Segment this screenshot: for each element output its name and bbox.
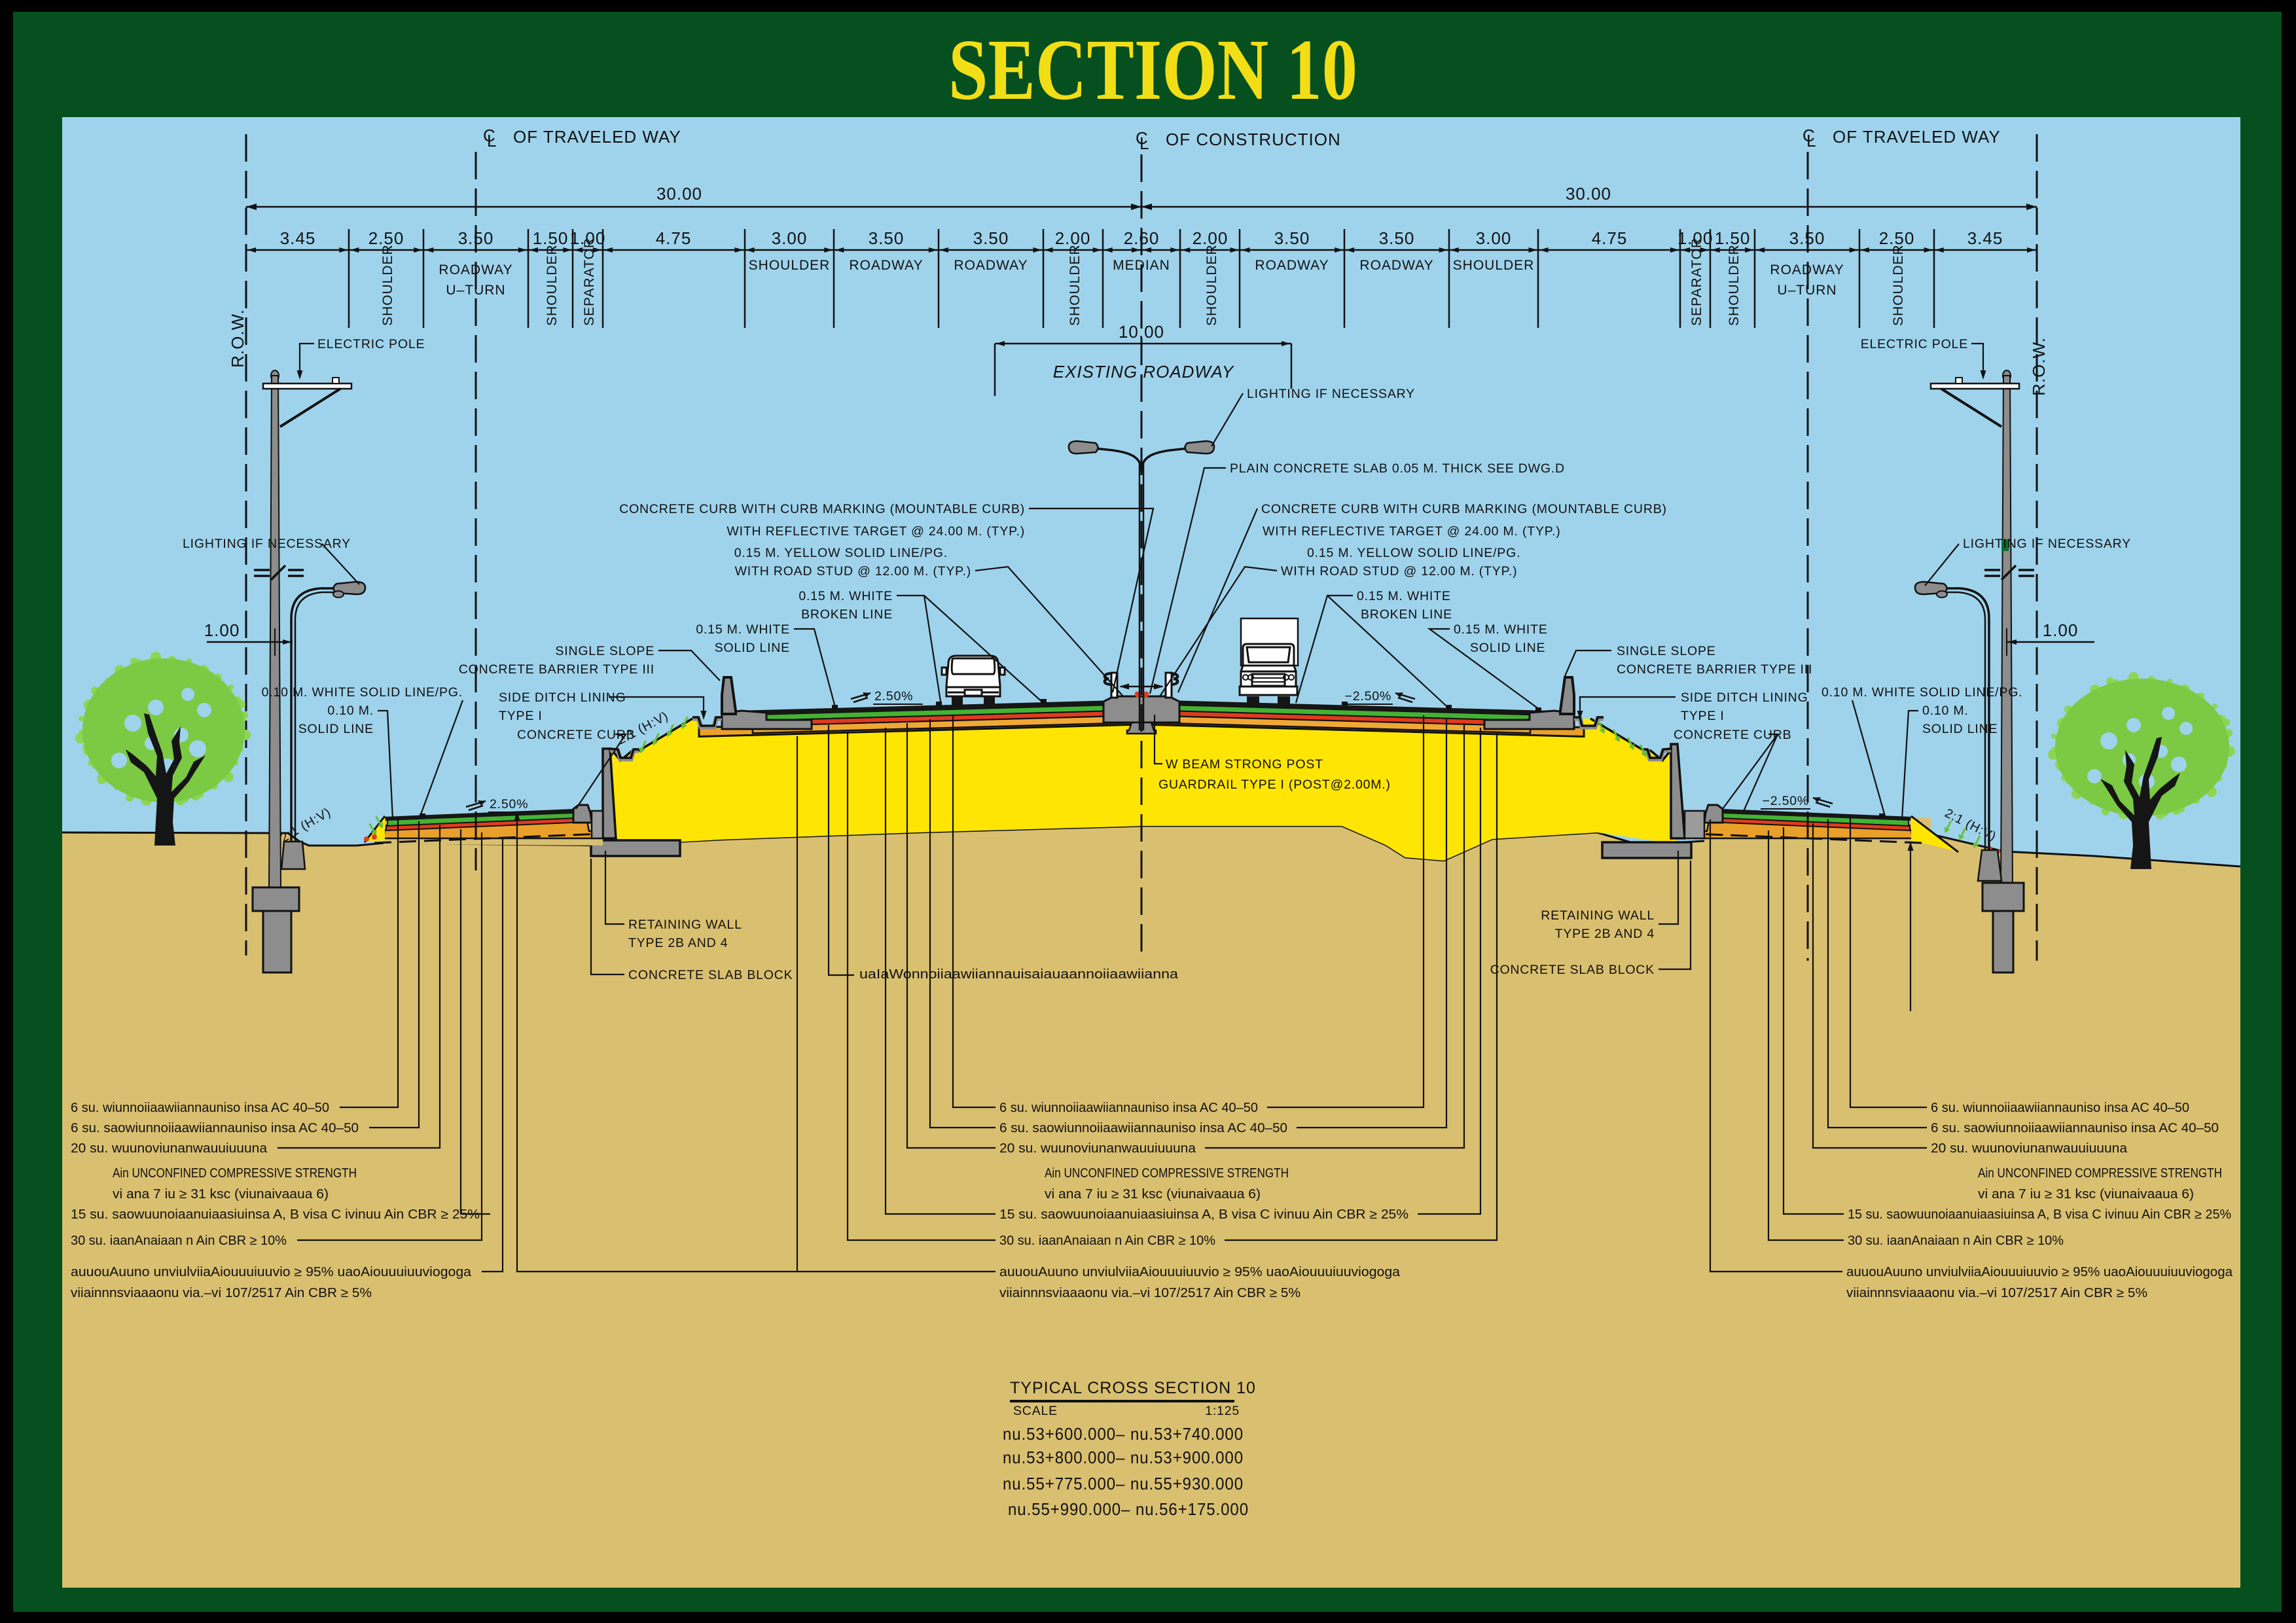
svg-text:0.15 M. YELLOW SOLID LINE/PG.: 0.15 M. YELLOW SOLID LINE/PG. [734,546,948,560]
svg-text:ROADWAY: ROADWAY [1255,258,1329,273]
svg-text:auuouAuuno unviulviiaAiouuuiuu: auuouAuuno unviulviiaAiouuuiuuvio ≥ 95% … [71,1265,472,1279]
svg-text:6 su. wiunnoiiaawiiannauniso i: 6 su. wiunnoiiaawiiannauniso insa AC 40–… [71,1101,329,1115]
svg-text:SIDE DITCH LINING: SIDE DITCH LINING [1681,690,1808,705]
svg-text:0.10 M. WHITE SOLID LINE/PG.: 0.10 M. WHITE SOLID LINE/PG. [1821,685,2022,700]
svg-text:4.75: 4.75 [656,228,692,248]
svg-text:R.O.W.: R.O.W. [228,309,247,368]
svg-text:1.00: 1.00 [204,620,240,640]
svg-text:15 su. saowuunoiaanuiaasiuinsa: 15 su. saowuunoiaanuiaasiuinsa A, B visa… [999,1207,1408,1222]
svg-text:0.10 M.: 0.10 M. [1922,704,1969,718]
svg-text:2.50%: 2.50% [874,689,913,704]
svg-text:0.15 M. WHITE: 0.15 M. WHITE [798,589,893,603]
svg-text:ROADWAY: ROADWAY [1770,262,1844,277]
svg-text:EXISTING ROADWAY: EXISTING ROADWAY [1053,362,1234,382]
svg-text:SHOULDER: SHOULDER [1727,244,1742,326]
svg-text:SOLID LINE: SOLID LINE [1470,641,1545,655]
svg-text:OF TRAVELED WAY: OF TRAVELED WAY [513,127,681,147]
svg-text:Ain UNCONFINED COMPRESSIVE STR: Ain UNCONFINED COMPRESSIVE STRENGTH [1045,1166,1289,1181]
svg-text:4.75: 4.75 [1592,228,1628,248]
svg-text:auuouAuuno unviulviiaAiouuuiuu: auuouAuuno unviulviiaAiouuuiuuvio ≥ 95% … [999,1265,1401,1279]
svg-text:SECTION 10: SECTION 10 [948,21,1357,118]
svg-text:SHOULDER: SHOULDER [380,244,395,326]
svg-text:uaIaWonnoiiaawiiannauisaiauaan: uaIaWonnoiiaawiiannauisaiauaannoiiaawiia… [859,967,1179,982]
svg-text:L: L [1139,134,1149,153]
svg-text:30 su. iaanAnaiaan n Ain CBR ≥: 30 su. iaanAnaiaan n Ain CBR ≥ 10% [1848,1234,2064,1248]
svg-text:OF TRAVELED WAY: OF TRAVELED WAY [1833,127,2001,147]
svg-text:RETAINING WALL: RETAINING WALL [628,918,742,932]
svg-text:6 su. saowiunnoiiaawiiannaunis: 6 su. saowiunnoiiaawiiannauniso insa AC … [71,1121,359,1135]
svg-text:LIGHTING IF NECESSARY: LIGHTING IF NECESSARY [1247,387,1415,401]
svg-text:Ain UNCONFINED COMPRESSIVE STR: Ain UNCONFINED COMPRESSIVE STRENGTH [113,1166,357,1181]
svg-text:0.10 M. WHITE SOLID LINE/PG.: 0.10 M. WHITE SOLID LINE/PG. [262,685,463,700]
svg-text:CONCRETE SLAB BLOCK: CONCRETE SLAB BLOCK [1490,963,1655,977]
svg-text:SOLID LINE: SOLID LINE [298,722,374,736]
svg-text:6 su. saowiunnoiiaawiiannaunis: 6 su. saowiunnoiiaawiiannauniso insa AC … [999,1121,1287,1135]
svg-text:SHOULDER: SHOULDER [1204,244,1219,326]
svg-text:RETAINING WALL: RETAINING WALL [1541,908,1655,923]
svg-text:TYPE 2B AND 4: TYPE 2B AND 4 [628,936,728,950]
svg-text:WITH REFLECTIVE TARGET @ 24.00: WITH REFLECTIVE TARGET @ 24.00 M. (TYP.) [726,524,1025,539]
svg-text:ROADWAY: ROADWAY [954,258,1028,273]
svg-text:3.50: 3.50 [458,228,494,248]
svg-text:30.00: 30.00 [1566,184,1611,204]
svg-text:vi ana 7 iu ≥ 31 ksc (viunaiva: vi ana 7 iu ≥ 31 ksc (viunaivaaua 6) [1978,1187,2194,1202]
svg-text:1.00: 1.00 [2043,620,2079,640]
svg-text:SHOULDER: SHOULDER [749,258,831,273]
svg-text:15 su. saowuunoiaanuiaasiuinsa: 15 su. saowuunoiaanuiaasiuinsa A, B visa… [71,1207,480,1222]
svg-text:nu.55+775.000– nu.55+930.000: nu.55+775.000– nu.55+930.000 [1003,1474,1244,1493]
svg-text:15 su. saowuunoiaanuiaasiuinsa: 15 su. saowuunoiaanuiaasiuinsa A, B visa… [1848,1207,2231,1222]
svg-text:GUARDRAIL TYPE I (POST@2.00M.): GUARDRAIL TYPE I (POST@2.00M.) [1158,777,1391,792]
svg-text:0.10 M.: 0.10 M. [327,704,374,718]
svg-text:6 su. wiunnoiiaawiiannauniso i: 6 su. wiunnoiiaawiiannauniso insa AC 40–… [999,1101,1258,1115]
svg-text:nu.53+800.000– nu.53+900.000: nu.53+800.000– nu.53+900.000 [1003,1448,1244,1467]
svg-text:ROADWAY: ROADWAY [439,262,512,277]
svg-text:viiainnnsviaaaonu via.–vi 107/: viiainnnsviaaaonu via.–vi 107/2517 Ain C… [1846,1286,2147,1300]
svg-text:U–TURN: U–TURN [446,283,505,298]
svg-text:MEDIAN: MEDIAN [1113,258,1170,273]
svg-text:20 su. wuunoviunanwauuiuuuna: 20 su. wuunoviunanwauuiuuuna [1931,1141,2128,1156]
svg-text:TYPE 2B AND 4: TYPE 2B AND 4 [1555,927,1655,941]
svg-text:20 su. wuunoviunanwauuiuuuna: 20 su. wuunoviunanwauuiuuuna [999,1141,1196,1156]
svg-text:ROADWAY: ROADWAY [849,258,923,273]
svg-text:ROADWAY: ROADWAY [1359,258,1433,273]
svg-text:SINGLE SLOPE: SINGLE SLOPE [1617,644,1716,658]
svg-text:2.50%: 2.50% [490,797,528,811]
svg-text:W BEAM STRONG POST: W BEAM STRONG POST [1166,757,1323,772]
svg-text:vi ana 7 iu ≥ 31 ksc (viunaiva: vi ana 7 iu ≥ 31 ksc (viunaivaaua 6) [113,1187,329,1202]
svg-text:SHOULDER: SHOULDER [1891,244,1906,326]
svg-text:vi ana 7 iu ≥ 31 ksc (viunaiva: vi ana 7 iu ≥ 31 ksc (viunaivaaua 6) [1045,1187,1261,1202]
svg-text:CONCRETE BARRIER TYPE III: CONCRETE BARRIER TYPE III [1617,662,1812,677]
svg-text:OF CONSTRUCTION: OF CONSTRUCTION [1166,130,1341,149]
svg-text:3.00: 3.00 [1476,228,1512,248]
svg-text:0.15 M. WHITE: 0.15 M. WHITE [696,622,790,637]
svg-text:CONCRETE CURB WITH CURB MARKIN: CONCRETE CURB WITH CURB MARKING (MOUNTAB… [1261,502,1667,516]
svg-text:10.00: 10.00 [1119,322,1164,342]
svg-text:SINGLE SLOPE: SINGLE SLOPE [555,644,655,658]
svg-text:L: L [1806,131,1816,151]
svg-text:BROKEN LINE: BROKEN LINE [1361,607,1452,622]
svg-text:SHOULDER: SHOULDER [1453,258,1535,273]
svg-text:6 su. saowiunnoiiaawiiannaunis: 6 su. saowiunnoiiaawiiannauniso insa AC … [1931,1121,2219,1135]
svg-text:3.50: 3.50 [1379,228,1415,248]
svg-text:3.50: 3.50 [1789,228,1825,248]
svg-text:2.60: 2.60 [1124,228,1160,248]
svg-text:nu.55+990.000– nu.56+175.000: nu.55+990.000– nu.56+175.000 [1008,1499,1249,1519]
svg-text:30.00: 30.00 [656,184,702,204]
svg-text:SOLID LINE: SOLID LINE [715,641,790,655]
svg-text:WITH ROAD STUD @ 12.00 M. (TYP: WITH ROAD STUD @ 12.00 M. (TYP.) [1281,564,1517,579]
svg-text:3.50: 3.50 [1274,228,1310,248]
svg-text:Ain UNCONFINED COMPRESSIVE STR: Ain UNCONFINED COMPRESSIVE STRENGTH [1978,1166,2222,1181]
svg-text:SHOULDER: SHOULDER [545,244,560,326]
svg-text:SEPARATOR: SEPARATOR [582,238,597,326]
svg-text:TYPICAL CROSS SECTION 10: TYPICAL CROSS SECTION 10 [1010,1379,1256,1397]
svg-text:CONCRETE BARRIER TYPE III: CONCRETE BARRIER TYPE III [459,662,655,677]
svg-text:CONCRETE SLAB BLOCK: CONCRETE SLAB BLOCK [628,968,793,982]
svg-text:0.15 M. YELLOW SOLID LINE/PG.: 0.15 M. YELLOW SOLID LINE/PG. [1307,546,1520,560]
svg-text:L: L [487,131,497,151]
svg-text:−2.50%: −2.50% [1345,689,1391,704]
svg-text:LIGHTING IF NECESSARY: LIGHTING IF NECESSARY [183,537,351,551]
svg-text:3.45: 3.45 [280,228,316,248]
svg-text:3.45: 3.45 [1967,228,2003,248]
svg-text:WITH ROAD STUD @ 12.00 M. (TYP: WITH ROAD STUD @ 12.00 M. (TYP.) [735,564,971,579]
svg-text:LIGHTING IF NECESSARY: LIGHTING IF NECESSARY [1963,537,2131,551]
svg-text:30 su. iaanAnaiaan n Ain CBR ≥: 30 su. iaanAnaiaan n Ain CBR ≥ 10% [71,1234,287,1248]
svg-text:TYPE I: TYPE I [499,709,543,723]
svg-text:U–TURN: U–TURN [1777,283,1837,298]
svg-text:3.00: 3.00 [772,228,808,248]
svg-text:30 su. iaanAnaiaan n Ain CBR ≥: 30 su. iaanAnaiaan n Ain CBR ≥ 10% [999,1234,1215,1248]
svg-text:auuouAuuno unviulviiaAiouuuiuu: auuouAuuno unviulviiaAiouuuiuuvio ≥ 95% … [1846,1265,2233,1279]
svg-text:SOLID LINE: SOLID LINE [1922,722,1998,736]
svg-text:ELECTRIC POLE: ELECTRIC POLE [317,337,425,351]
svg-text:SCALE: SCALE [1013,1404,1058,1418]
svg-text:−2.50%: −2.50% [1763,794,1809,808]
svg-text:SHOULDER: SHOULDER [1067,244,1083,326]
svg-text:1:125: 1:125 [1205,1404,1240,1418]
svg-text:viiainnnsviaaaonu via.–vi 107/: viiainnnsviaaaonu via.–vi 107/2517 Ain C… [999,1286,1300,1300]
svg-text:SIDE DITCH LINING: SIDE DITCH LINING [499,690,626,705]
svg-text:CONCRETE CURB WITH CURB MARKIN: CONCRETE CURB WITH CURB MARKING (MOUNTAB… [619,502,1025,516]
svg-text:3.50: 3.50 [869,228,905,248]
svg-text:0.15 M. WHITE: 0.15 M. WHITE [1454,622,1548,637]
svg-text:nu.53+600.000– nu.53+740.000: nu.53+600.000– nu.53+740.000 [1003,1424,1244,1444]
svg-text:20 su. wuunoviunanwauuiuuuna: 20 su. wuunoviunanwauuiuuuna [71,1141,268,1156]
svg-text:BROKEN LINE: BROKEN LINE [801,607,893,622]
svg-text:ELECTRIC POLE: ELECTRIC POLE [1861,337,1968,351]
svg-text:R.O.W.: R.O.W. [2029,337,2049,396]
svg-text:PLAIN CONCRETE SLAB 0.05 M. TH: PLAIN CONCRETE SLAB 0.05 M. THICK SEE DW… [1230,461,1565,476]
svg-text:WITH REFLECTIVE TARGET @ 24.00: WITH REFLECTIVE TARGET @ 24.00 M. (TYP.) [1263,524,1561,539]
svg-text:SEPARATOR: SEPARATOR [1689,238,1704,326]
svg-text:3.50: 3.50 [973,228,1009,248]
svg-text:viiainnnsviaaaonu via.–vi 107/: viiainnnsviaaaonu via.–vi 107/2517 Ain C… [71,1286,372,1300]
svg-text:6 su. wiunnoiiaawiiannauniso i: 6 su. wiunnoiiaawiiannauniso insa AC 40–… [1931,1101,2189,1115]
svg-text:TYPE I: TYPE I [1681,709,1725,723]
svg-text:0.15 M. WHITE: 0.15 M. WHITE [1357,589,1451,603]
